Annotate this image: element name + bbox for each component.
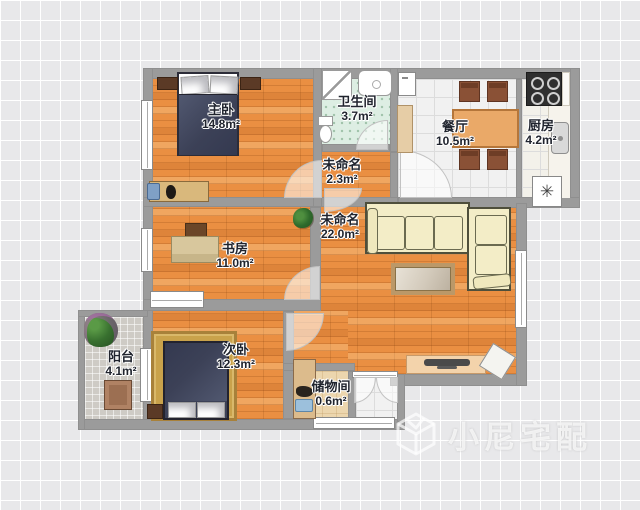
- nightstand[interactable]: [157, 77, 178, 90]
- sofa-cushion: [376, 216, 405, 250]
- window-study-bottom[interactable]: [150, 291, 204, 308]
- bed-master[interactable]: [177, 72, 239, 156]
- desk-chair-blue[interactable]: [147, 183, 160, 200]
- fridge-handle: [402, 77, 408, 79]
- wall-right-kitchen: [570, 68, 580, 208]
- nightstand[interactable]: [147, 404, 163, 419]
- pillow: [168, 402, 196, 418]
- washing-machine-icon[interactable]: ✳: [532, 176, 562, 207]
- storage-blue-item: [295, 399, 313, 412]
- sink-drain: [558, 136, 563, 141]
- duvet: [179, 94, 237, 155]
- window-living-right[interactable]: [515, 250, 527, 328]
- sofa-cushion: [475, 215, 507, 245]
- entry-cabinet[interactable]: [397, 105, 413, 153]
- watermark-text: 小尼宅配: [448, 412, 592, 457]
- pillow: [197, 402, 225, 418]
- burner: [531, 92, 544, 105]
- dining-chair[interactable]: [459, 149, 480, 170]
- sofa-cushion: [475, 245, 507, 275]
- window-storage-bottom[interactable]: [313, 417, 395, 429]
- fridge-icon[interactable]: [398, 72, 416, 96]
- plant-icon[interactable]: [293, 208, 313, 228]
- tv-base: [437, 366, 457, 369]
- storage-dark-item: [296, 386, 313, 397]
- toilet-bowl: [319, 125, 332, 143]
- balcony-stool[interactable]: [104, 380, 132, 410]
- burner: [547, 77, 560, 90]
- dining-chair[interactable]: [487, 81, 508, 102]
- flower-plant-icon[interactable]: [84, 313, 118, 347]
- sofa-main[interactable]: [365, 202, 470, 254]
- floor-plan-canvas: ✳ 主卧 14.8m² 卫生间 3.7m²: [0, 0, 640, 510]
- shower-icon[interactable]: [322, 70, 352, 100]
- sofa-cushion: [405, 216, 434, 250]
- bathroom-sink-icon[interactable]: [358, 70, 392, 96]
- washer-symbol: ✳: [540, 182, 554, 202]
- pillow: [180, 75, 209, 95]
- toilet-icon[interactable]: [318, 116, 333, 143]
- sofa-armrest: [472, 273, 511, 290]
- counter-end: [562, 72, 570, 106]
- coffee-table[interactable]: [391, 263, 455, 295]
- bed-second[interactable]: [163, 341, 229, 420]
- sink-drain: [372, 80, 381, 89]
- watermark: 小尼宅配: [390, 408, 592, 460]
- chair-dark[interactable]: [166, 185, 176, 199]
- study-desk[interactable]: [171, 236, 219, 263]
- sofa-cushion: [434, 216, 463, 250]
- dining-chair[interactable]: [487, 149, 508, 170]
- dining-chair[interactable]: [459, 81, 480, 102]
- sofa-chaise[interactable]: [467, 207, 511, 291]
- sofa-armrest: [367, 208, 378, 254]
- nightstand[interactable]: [240, 77, 261, 90]
- window-master-left[interactable]: [141, 100, 153, 170]
- stove-icon[interactable]: [526, 72, 562, 106]
- burner: [547, 92, 560, 105]
- kitchen-sink-icon[interactable]: [551, 122, 569, 154]
- window-study-left[interactable]: [141, 228, 153, 272]
- tv-icon: [424, 359, 470, 366]
- cube-logo-icon: [390, 408, 442, 460]
- burner: [531, 77, 544, 90]
- pillow: [210, 75, 239, 94]
- tv-stand[interactable]: [406, 355, 486, 374]
- dining-table[interactable]: [452, 109, 519, 148]
- duvet: [165, 343, 227, 401]
